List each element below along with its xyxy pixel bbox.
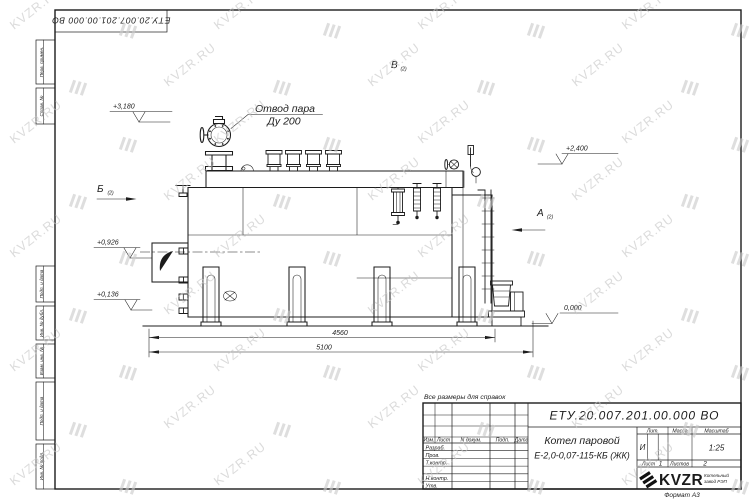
drum-top-caps xyxy=(266,151,342,172)
product-name-line1: Котел паровой xyxy=(544,435,619,447)
sheet-label: Лист xyxy=(641,462,656,468)
elevation-value: 0,000 xyxy=(564,305,582,312)
watermark-logo-icon xyxy=(524,19,548,43)
watermark-text: KVZR.RU xyxy=(211,0,268,32)
support-leg-slots xyxy=(207,275,471,322)
logo-text: KVZR xyxy=(659,472,703,489)
margin-box: Подп. и дата xyxy=(36,382,55,440)
view-arrow-icon xyxy=(512,228,523,232)
drawing-sheet: ЕТУ.20.007.201.00.000 ВО Перв. примен. С… xyxy=(0,0,750,500)
watermark-text: KVZR.RU xyxy=(569,154,626,203)
watermark-text: KVZR.RU xyxy=(211,211,268,260)
watermark-logo-icon xyxy=(728,133,750,157)
watermark-logo-icon xyxy=(678,76,702,100)
view-mark-a: А (2) xyxy=(512,208,554,232)
margin-box-label: Перв. примен. xyxy=(39,47,44,78)
sheets-value: 2 xyxy=(702,461,707,468)
logo-tagline-1: Котельный xyxy=(704,472,729,478)
watermark-logo-icon xyxy=(116,247,140,271)
margin-box-label: Справ. № xyxy=(39,96,44,117)
watermark-text: KVZR.RU xyxy=(415,0,472,32)
view-letter: В xyxy=(391,60,398,71)
margin-box: Справ. № xyxy=(36,88,55,124)
blower-unit xyxy=(489,281,525,326)
margin-stamp-boxes: Перв. примен. Справ. № Подп. и дата Инв.… xyxy=(36,40,55,489)
elevation-mark: +2,400 xyxy=(538,146,618,165)
doc-number: ЕТУ.20.007.201.00.000 ВО xyxy=(550,409,720,423)
margin-box: Инв. № дубл. xyxy=(36,306,55,340)
reference-note: Все размеры для справок xyxy=(424,393,506,401)
elevation-mark: +0,136 xyxy=(94,292,152,311)
masshtab-value: 1:25 xyxy=(709,444,725,453)
margin-box: Перв. примен. xyxy=(36,40,55,84)
watermark-text: KVZR.RU xyxy=(7,211,64,260)
margin-box: Подп. и дата xyxy=(36,266,55,302)
view-letter: А xyxy=(536,208,544,219)
margin-box: Взам. инв. № xyxy=(36,344,55,378)
drum-dome xyxy=(241,165,253,171)
water-level-gauge xyxy=(392,188,405,225)
margin-box-label: Взам. инв. № xyxy=(39,347,44,375)
massa-label: Масса xyxy=(672,428,687,434)
watermark-text: KVZR.RU xyxy=(161,40,218,89)
watermark-logo-icon xyxy=(524,247,548,271)
elevation-mark: +3,180 xyxy=(110,104,172,123)
view-letter: Б xyxy=(97,184,104,195)
watermark-logo-icon xyxy=(474,76,498,100)
boiler-body xyxy=(188,171,492,317)
watermark-text: KVZR.RU xyxy=(161,268,218,317)
role-nkontr: Н.контр. xyxy=(426,476,449,482)
watermark-logo-icon xyxy=(728,475,750,499)
watermark-logo-icon xyxy=(66,190,90,214)
lit-value: И xyxy=(640,443,646,452)
view-arrow-icon xyxy=(126,197,137,201)
watermark-layer: KVZR.RUKVZR.RUKVZR.RUKVZR.RUKVZR.RUKVZR.… xyxy=(7,0,750,499)
dimension-value: 4560 xyxy=(332,330,348,337)
watermark-logo-icon xyxy=(320,247,344,271)
col-data: Дата xyxy=(514,437,529,443)
watermark-logo-icon xyxy=(116,475,140,499)
watermark-logo-icon xyxy=(474,190,498,214)
watermark-text: KVZR.RU xyxy=(569,382,626,431)
watermark-logo-icon xyxy=(678,190,702,214)
watermark-logo-icon xyxy=(320,19,344,43)
view-mark-b: Б (2) xyxy=(97,184,137,201)
margin-box-label: Инв. № подл. xyxy=(39,452,44,481)
dimension-4560: 4560 xyxy=(149,329,495,357)
watermark-logo-icon xyxy=(270,190,294,214)
watermark-logo-icon xyxy=(728,361,750,385)
left-wall-nozzles xyxy=(179,248,188,314)
watermark-text: KVZR.RU xyxy=(619,211,676,260)
watermark-text: KVZR.RU xyxy=(619,97,676,146)
watermark-text: KVZR.RU xyxy=(415,211,472,260)
burner-box xyxy=(152,243,188,282)
top-doc-stamp: ЕТУ.20.007.201.00.000 ВО xyxy=(52,10,171,32)
level-sensor-column xyxy=(433,184,441,220)
watermark-text: KVZR.RU xyxy=(415,97,472,146)
elevation-value: +3,180 xyxy=(113,104,135,111)
kvzr-logo-icon xyxy=(640,473,656,488)
elevation-value: +2,400 xyxy=(566,146,588,153)
lit-label: Лит. xyxy=(646,428,659,434)
callout-line2: Ду 200 xyxy=(266,116,300,128)
watermark-logo-icon xyxy=(270,304,294,328)
handwheel-icon xyxy=(200,128,204,143)
watermark-text: KVZR.RU xyxy=(365,382,422,431)
margin-box-label: Подп. и дата xyxy=(39,396,44,425)
watermark-logo-icon xyxy=(728,247,750,271)
role-tkontr: Т.контр. xyxy=(426,461,448,467)
watermark-text: KVZR.RU xyxy=(161,382,218,431)
watermark-logo-icon xyxy=(320,361,344,385)
col-podp: Подп. xyxy=(496,437,510,443)
view-mark-v: В (2) xyxy=(391,60,407,73)
watermark-text: KVZR.RU xyxy=(415,325,472,374)
margin-box-label: Подп. и дата xyxy=(39,269,44,298)
col-list: Лист xyxy=(436,437,451,443)
title-block: ЕТУ.20.007.201.00.000 ВО Котел паровой Е… xyxy=(423,403,741,499)
margin-box: Инв. № подл. xyxy=(36,444,55,489)
watermark-logo-icon xyxy=(728,19,750,43)
watermark-logo-icon xyxy=(66,304,90,328)
watermark-text: KVZR.RU xyxy=(211,325,268,374)
top-doc-number: ЕТУ.20.007.201.00.000 ВО xyxy=(52,16,171,26)
elevation-value: +0,136 xyxy=(97,292,119,299)
annotations: Отвод пара Ду 200 Б (2) В (2) А (2) +3,1… xyxy=(94,60,618,401)
boiler-drawing xyxy=(140,117,548,327)
view-sheet-ref: (2) xyxy=(401,67,407,73)
sheets-label: Листов xyxy=(669,462,689,468)
steam-outlet-callout: Отвод пара Ду 200 xyxy=(231,103,323,129)
burner-flame xyxy=(160,251,173,271)
elevation-value: +0,926 xyxy=(97,240,119,247)
watermark-logo-icon xyxy=(524,361,548,385)
dimension-value: 5100 xyxy=(316,345,332,352)
watermark-logo-icon xyxy=(678,304,702,328)
watermark-logo-icon xyxy=(270,76,294,100)
view-sheet-ref: (2) xyxy=(547,215,553,221)
steam-outlet-valve xyxy=(200,117,232,172)
watermark-logo-icon xyxy=(320,475,344,499)
col-n-dokum: N докум. xyxy=(461,437,482,443)
watermark-logo-icon xyxy=(116,133,140,157)
role-razrab: Разраб. xyxy=(426,445,446,451)
callout-line1: Отвод пара xyxy=(255,103,315,115)
watermark-logo-icon xyxy=(524,133,548,157)
watermark-text: KVZR.RU xyxy=(569,40,626,89)
elevation-mark: 0,000 xyxy=(532,305,618,324)
margin-box-label: Инв. № дубл. xyxy=(39,309,44,337)
watermark-logo-icon xyxy=(320,133,344,157)
watermark-logo-icon xyxy=(270,418,294,442)
watermark-logo-icon xyxy=(66,418,90,442)
watermark-logo-icon xyxy=(474,304,498,328)
watermark-text: KVZR.RU xyxy=(161,154,218,203)
role-utv: Утв. xyxy=(425,484,438,490)
watermark-logo-icon xyxy=(66,76,90,100)
elevation-mark: +0,926 xyxy=(94,240,152,259)
format-note: Формат А3 xyxy=(664,492,700,499)
watermark-logo-icon xyxy=(116,361,140,385)
company-logo: KVZR Котельный завод РЭП xyxy=(640,472,729,489)
handhole xyxy=(224,291,237,301)
view-sheet-ref: (2) xyxy=(108,191,114,197)
watermark-text: KVZR.RU xyxy=(619,0,676,32)
col-izm: Изм. xyxy=(423,437,434,443)
level-sensor-column xyxy=(413,184,421,220)
blower-motor xyxy=(511,292,524,311)
watermark-logo-icon xyxy=(524,475,548,499)
logo-tagline-2: завод РЭП xyxy=(703,479,728,484)
role-prov: Пров. xyxy=(426,453,440,459)
watermark-text: KVZR.RU xyxy=(211,439,268,488)
product-name-line2: Е-2,0-0,07-115-КБ (ЖК) xyxy=(534,451,630,461)
watermark-text: KVZR.RU xyxy=(619,325,676,374)
masshtab-label: Масштаб xyxy=(704,428,729,434)
sheet-value: 1 xyxy=(659,461,663,468)
